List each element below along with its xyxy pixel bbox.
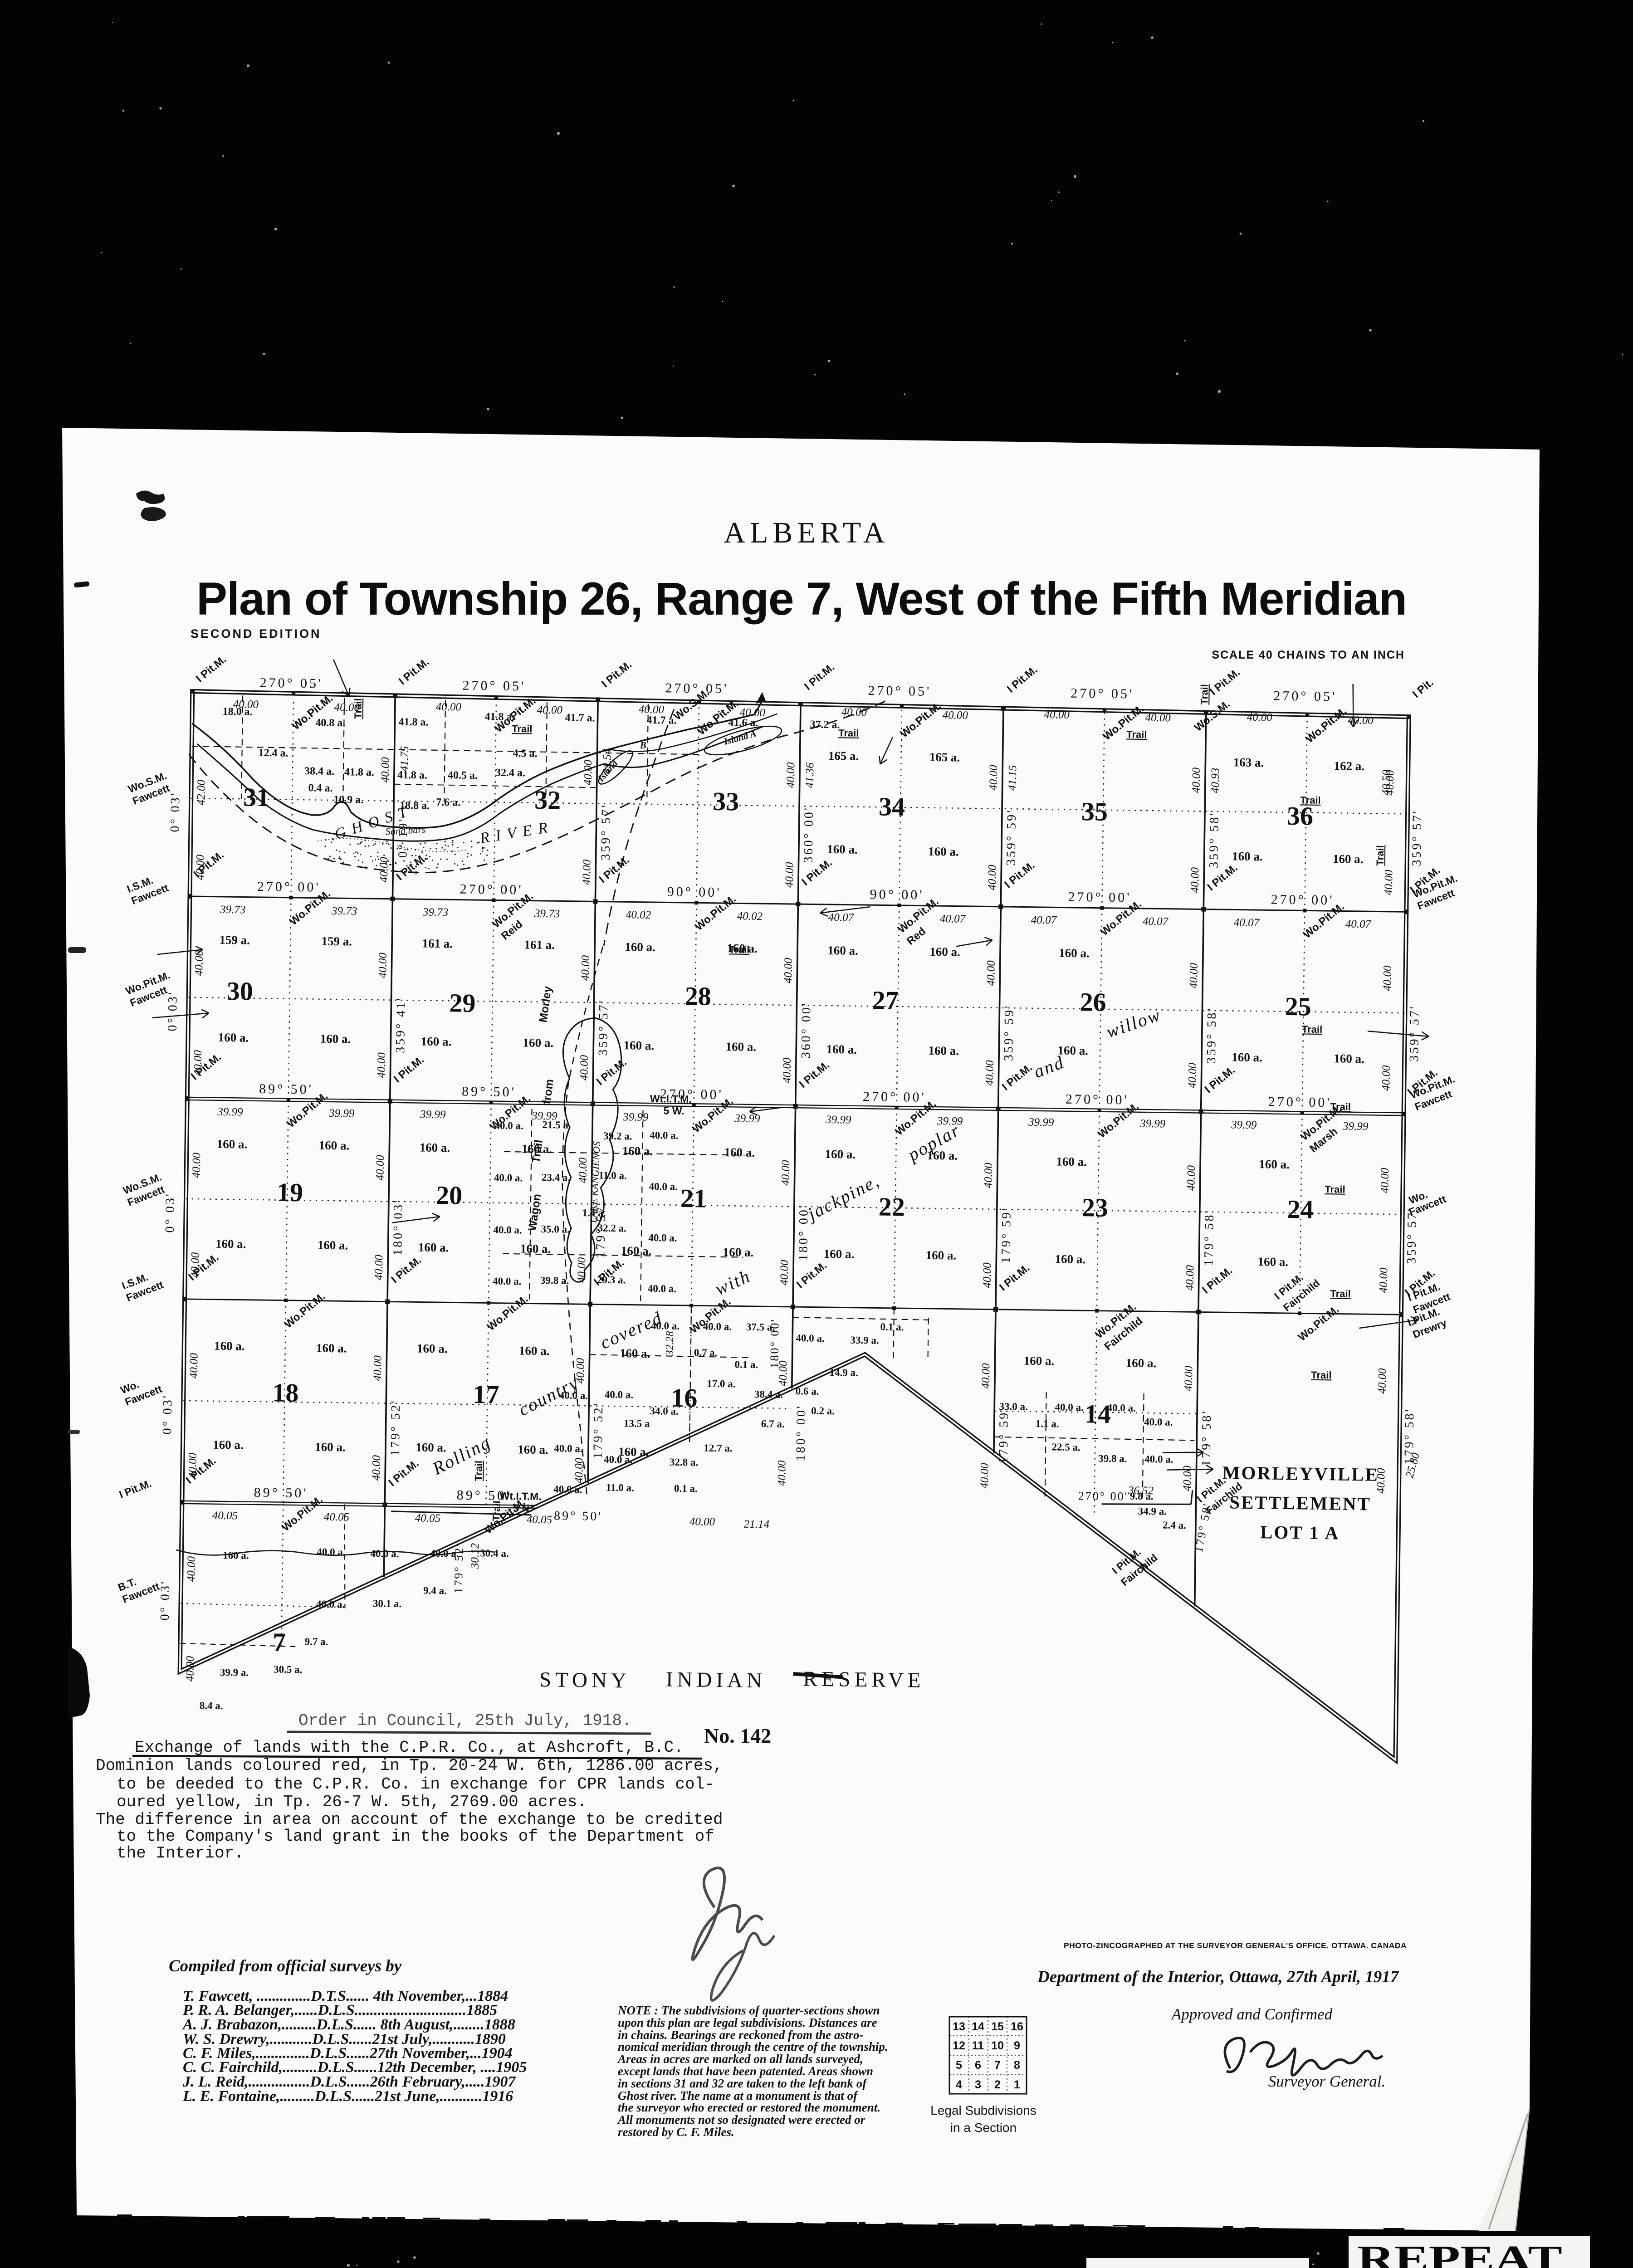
svg-text:B: B <box>640 740 646 751</box>
svg-text:40.00: 40.00 <box>372 1355 384 1381</box>
svg-text:Exchange of lands with the C.P: Exchange of lands with the C.P.R. Co., a… <box>135 1738 684 1757</box>
svg-text:89° 50': 89° 50' <box>462 1084 516 1100</box>
svg-text:35: 35 <box>1081 797 1108 826</box>
svg-text:0.4 a.: 0.4 a. <box>308 782 332 794</box>
svg-text:39.99: 39.99 <box>1342 1120 1369 1133</box>
svg-text:40.00: 40.00 <box>841 706 867 719</box>
svg-text:89° 50': 89° 50' <box>254 1485 308 1501</box>
svg-text:160 a.: 160 a. <box>315 1440 346 1454</box>
svg-text:160 a.: 160 a. <box>223 1549 249 1561</box>
svg-text:40.05: 40.05 <box>527 1514 552 1526</box>
svg-text:32: 32 <box>534 785 561 815</box>
svg-text:38.4 a.: 38.4 a. <box>304 765 334 777</box>
svg-text:40.00: 40.00 <box>1185 1165 1198 1191</box>
svg-text:40.00: 40.00 <box>577 1157 589 1183</box>
svg-text:160 a.: 160 a. <box>214 1339 245 1353</box>
svg-text:39.99: 39.99 <box>1231 1119 1257 1131</box>
svg-text:5 W.: 5 W. <box>663 1105 684 1117</box>
svg-text:160 a.: 160 a. <box>518 1442 548 1457</box>
svg-text:160 a.: 160 a. <box>417 1341 448 1355</box>
svg-text:40.00: 40.00 <box>983 1060 996 1086</box>
svg-text:Trail: Trail <box>473 1461 484 1481</box>
svg-text:0° 03': 0° 03' <box>166 991 180 1031</box>
svg-text:upon this plan are legal subdi: upon this plan are legal subdivisions. D… <box>618 2016 877 2029</box>
svg-text:15: 15 <box>991 2020 1004 2033</box>
svg-text:40.00: 40.00 <box>191 1152 203 1178</box>
svg-text:0° 03': 0° 03' <box>168 792 182 832</box>
svg-text:90° 00': 90° 00' <box>667 884 722 900</box>
svg-text:40.00: 40.00 <box>779 1160 792 1186</box>
svg-text:39.8 a.: 39.8 a. <box>540 1275 569 1286</box>
svg-text:40.02: 40.02 <box>626 909 651 921</box>
svg-text:179° 59': 179° 59' <box>997 1407 1012 1464</box>
svg-text:160 a.: 160 a. <box>1057 1043 1088 1057</box>
svg-text:270° 05': 270° 05' <box>1071 686 1134 702</box>
svg-text:39.73: 39.73 <box>534 908 560 920</box>
svg-text:359° 57': 359° 57' <box>1410 809 1425 866</box>
svg-text:270° 00': 270° 00' <box>1271 892 1334 908</box>
svg-text:40.00: 40.00 <box>1376 1368 1389 1394</box>
svg-text:160 a.: 160 a. <box>725 1040 756 1054</box>
svg-text:40.00: 40.00 <box>1381 965 1394 991</box>
svg-text:Trail: Trail <box>729 943 750 955</box>
svg-text:40.00: 40.00 <box>188 1353 200 1378</box>
svg-text:27: 27 <box>872 985 899 1015</box>
svg-text:40.5 a.: 40.5 a. <box>448 769 478 782</box>
svg-text:40.00: 40.00 <box>185 1556 198 1582</box>
svg-text:40.00: 40.00 <box>194 854 207 880</box>
svg-text:270° 00': 270° 00' <box>1068 890 1131 905</box>
svg-text:except lands that have been pa: except lands that have been patented. Ar… <box>618 2064 873 2078</box>
svg-text:40.00: 40.00 <box>537 704 563 717</box>
svg-text:270° 00': 270° 00' <box>1268 1094 1332 1110</box>
svg-text:11.0 a.: 11.0 a. <box>599 1170 627 1182</box>
svg-text:160 a.: 160 a. <box>929 945 960 959</box>
svg-text:160 a.: 160 a. <box>623 1038 654 1052</box>
svg-text:39.99: 39.99 <box>622 1111 649 1124</box>
svg-text:40.00: 40.00 <box>576 1257 588 1283</box>
svg-text:Trail: Trail <box>1374 845 1386 866</box>
svg-text:40.8 a.: 40.8 a. <box>315 717 345 729</box>
svg-text:32.8 a.: 32.8 a. <box>670 1457 699 1468</box>
svg-text:40.00: 40.00 <box>193 950 205 976</box>
svg-text:9.4 a.: 9.4 a. <box>423 1585 447 1597</box>
svg-text:11: 11 <box>972 2039 984 2052</box>
svg-text:12: 12 <box>953 2039 965 2052</box>
svg-text:39.99: 39.99 <box>420 1108 446 1121</box>
svg-text:179° 58': 179° 58' <box>1199 1409 1214 1466</box>
svg-text:34.9 a.: 34.9 a. <box>1138 1505 1167 1517</box>
svg-text:40.0 a.: 40.0 a. <box>554 1442 583 1454</box>
svg-text:The difference in area on acco: The difference in area on account of the… <box>96 1810 723 1829</box>
svg-text:2 OF / DE 2: 2 OF / DE 2 <box>1101 2265 1294 2268</box>
svg-text:40.00: 40.00 <box>582 759 595 785</box>
svg-text:13.5 a: 13.5 a <box>624 1417 650 1429</box>
svg-text:40.00: 40.00 <box>375 1052 388 1078</box>
svg-text:40.07: 40.07 <box>940 913 966 925</box>
svg-text:9: 9 <box>1014 2039 1020 2052</box>
svg-text:the surveyor who erected or re: the surveyor who erected or restored the… <box>618 2101 880 2114</box>
svg-text:21: 21 <box>680 1183 707 1213</box>
svg-text:40.0 a.: 40.0 a. <box>493 1224 522 1236</box>
svg-text:40.00: 40.00 <box>978 1463 991 1489</box>
svg-text:31: 31 <box>243 782 270 812</box>
svg-text:39.99: 39.99 <box>217 1106 243 1119</box>
svg-text:40.00: 40.00 <box>373 1254 386 1280</box>
svg-text:12.7 a.: 12.7 a. <box>704 1442 733 1454</box>
svg-text:Trail: Trail <box>1126 728 1147 740</box>
svg-text:40.0 a.: 40.0 a. <box>1144 1416 1173 1428</box>
svg-text:34.0 a.: 34.0 a. <box>650 1405 679 1417</box>
svg-text:160 a.: 160 a. <box>213 1438 244 1452</box>
svg-text:32.4 a.: 32.4 a. <box>495 767 525 779</box>
svg-text:1: 1 <box>1014 2078 1020 2091</box>
svg-text:26: 26 <box>1080 987 1106 1017</box>
svg-text:160 a.: 160 a. <box>926 1248 957 1262</box>
svg-text:the Interior.: the Interior. <box>117 1844 244 1862</box>
svg-text:2.4 a.: 2.4 a. <box>1163 1520 1186 1531</box>
svg-text:STONY: STONY <box>539 1668 631 1693</box>
svg-text:40.0 a.: 40.0 a. <box>604 1454 633 1466</box>
svg-text:NOTE : The subdivisions of qu: NOTE : The subdivisions of quarter-secti… <box>617 2004 880 2017</box>
svg-text:0.1 a.: 0.1 a. <box>674 1483 698 1495</box>
svg-text:Compiled from official surveys: Compiled from official surveys by <box>169 1957 402 1975</box>
svg-text:160 a.: 160 a. <box>622 1144 653 1158</box>
svg-text:7: 7 <box>273 1627 286 1657</box>
svg-text:Wt.I.T.M.: Wt.I.T.M. <box>499 1490 541 1502</box>
svg-text:40.00: 40.00 <box>689 1515 715 1528</box>
svg-text:40.0 a.: 40.0 a. <box>317 1546 346 1558</box>
svg-text:39.8 a.: 39.8 a. <box>1098 1453 1127 1465</box>
svg-text:89° 50': 89° 50' <box>554 1509 603 1523</box>
svg-text:30.12: 30.12 <box>469 1543 482 1569</box>
svg-text:162 a.: 162 a. <box>1334 759 1364 773</box>
svg-text:30: 30 <box>226 976 253 1006</box>
svg-text:40.00: 40.00 <box>1378 1267 1390 1293</box>
svg-text:270° 00': 270° 00' <box>1066 1092 1129 1108</box>
svg-text:30.5 a.: 30.5 a. <box>274 1663 303 1675</box>
svg-text:360° 00': 360° 00' <box>799 1002 814 1059</box>
svg-text:40.00: 40.00 <box>1044 709 1070 721</box>
svg-text:40.00: 40.00 <box>578 1055 591 1080</box>
svg-text:163 a.: 163 a. <box>1233 755 1264 769</box>
svg-text:Order in Council, 25th July, 1: Order in Council, 25th July, 1918. <box>298 1711 632 1730</box>
svg-text:Trail: Trail <box>1300 794 1321 806</box>
svg-text:SETTLEMENT: SETTLEMENT <box>1229 1491 1371 1514</box>
svg-text:180° 00': 180° 00' <box>768 1318 781 1369</box>
svg-text:10.9 a.: 10.9 a. <box>333 794 363 806</box>
svg-text:Trail: Trail <box>352 698 364 719</box>
svg-text:0.1 a.: 0.1 a. <box>880 1321 904 1333</box>
svg-text:41.75: 41.75 <box>398 746 411 772</box>
svg-text:40.00: 40.00 <box>783 862 796 888</box>
svg-text:PHOTO-ZINCOGRAPHED AT THE SURV: PHOTO-ZINCOGRAPHED AT THE SURVEYOR GENER… <box>1064 1941 1407 1950</box>
svg-text:32.28: 32.28 <box>664 1331 676 1356</box>
svg-text:30.1 a.: 30.1 a. <box>373 1598 402 1609</box>
svg-text:359° 58': 359° 58' <box>1207 811 1222 868</box>
svg-text:40.00: 40.00 <box>191 1050 204 1075</box>
svg-text:40.00: 40.00 <box>233 698 259 711</box>
svg-text:40.00: 40.00 <box>1186 1062 1199 1088</box>
svg-text:41.7 a.: 41.7 a. <box>646 714 676 727</box>
svg-text:35.0 a.: 35.0 a. <box>541 1223 570 1235</box>
svg-text:39.99: 39.99 <box>1139 1118 1166 1130</box>
svg-text:11.0 a.: 11.0 a. <box>606 1482 634 1494</box>
svg-text:40.07: 40.07 <box>1143 915 1169 928</box>
svg-text:Trail: Trail <box>512 723 533 735</box>
svg-text:160 a.: 160 a. <box>1059 946 1090 960</box>
svg-text:Trail: Trail <box>1198 684 1210 705</box>
svg-text:160 a.: 160 a. <box>625 940 655 954</box>
svg-text:18: 18 <box>272 1378 299 1408</box>
svg-text:39.73: 39.73 <box>220 904 246 916</box>
svg-text:40.00: 40.00 <box>942 709 968 722</box>
svg-text:39.99: 39.99 <box>825 1114 851 1126</box>
svg-text:39.99: 39.99 <box>328 1107 355 1120</box>
svg-text:41.15: 41.15 <box>1007 765 1019 791</box>
svg-text:Plan of Township 26, Range 7,: Plan of Township 26, Range 7, West of th… <box>196 573 1407 625</box>
svg-text:37.2 a.: 37.2 a. <box>810 719 840 731</box>
svg-text:Trail: Trail <box>1302 1023 1323 1035</box>
svg-text:160 a.: 160 a. <box>316 1341 347 1355</box>
svg-text:17: 17 <box>473 1379 499 1409</box>
svg-text:160 a.: 160 a. <box>827 842 858 856</box>
svg-text:165 a.: 165 a. <box>929 750 960 764</box>
svg-text:179° 52': 179° 52' <box>452 1543 465 1593</box>
svg-text:40.00: 40.00 <box>376 953 389 978</box>
svg-text:40.0 a.: 40.0 a. <box>553 1483 582 1495</box>
svg-text:SECOND EDITION: SECOND EDITION <box>191 627 322 640</box>
svg-text:359° 41': 359° 41' <box>393 996 408 1053</box>
svg-text:33: 33 <box>713 787 739 816</box>
svg-text:20: 20 <box>436 1180 463 1210</box>
svg-text:39.2 a.: 39.2 a. <box>603 1130 632 1142</box>
svg-text:9.7 a.: 9.7 a. <box>304 1636 328 1647</box>
svg-text:41.36: 41.36 <box>804 763 816 788</box>
svg-text:160 a.: 160 a. <box>928 1044 959 1058</box>
svg-text:40.00: 40.00 <box>781 1057 793 1083</box>
svg-text:RESERVE: RESERVE <box>803 1667 925 1692</box>
svg-text:21.14: 21.14 <box>744 1518 770 1531</box>
svg-text:40.0 a.: 40.0 a. <box>559 1389 588 1401</box>
svg-text:7.6 a.: 7.6 a. <box>436 797 460 809</box>
svg-text:179° 59': 179° 59' <box>999 1207 1014 1264</box>
svg-text:40.00: 40.00 <box>982 1163 995 1188</box>
svg-text:Trail: Trail <box>1330 1288 1351 1300</box>
svg-text:39.99: 39.99 <box>531 1110 557 1123</box>
svg-text:160 a.: 160 a. <box>1232 1050 1262 1064</box>
svg-text:40.00: 40.00 <box>1379 1168 1391 1193</box>
svg-text:Legal Subdivisions: Legal Subdivisions <box>930 2103 1037 2117</box>
svg-text:to be deeded to the C.P.R. Co.: to be deeded to the C.P.R. Co. in exchan… <box>117 1775 714 1794</box>
svg-text:160 a.: 160 a. <box>416 1440 446 1454</box>
svg-text:161 a.: 161 a. <box>524 938 555 952</box>
svg-text:270° 05': 270° 05' <box>1273 688 1337 704</box>
svg-text:22: 22 <box>878 1192 905 1222</box>
svg-text:0.1 a.: 0.1 a. <box>734 1359 758 1370</box>
svg-text:40.00: 40.00 <box>782 958 795 983</box>
svg-text:90° 00': 90° 00' <box>870 887 924 903</box>
svg-text:40.00: 40.00 <box>378 857 391 883</box>
svg-text:179° 58': 179° 58' <box>1202 1209 1217 1266</box>
svg-text:0° 19': 0° 19' <box>396 817 411 858</box>
svg-text:160 a.: 160 a. <box>927 1149 958 1163</box>
svg-text:40.00: 40.00 <box>1145 712 1171 724</box>
svg-text:160 a.: 160 a. <box>1257 1255 1288 1269</box>
svg-text:160 a.: 160 a. <box>826 1042 857 1056</box>
svg-text:40.00: 40.00 <box>374 1154 387 1180</box>
svg-text:160 a.: 160 a. <box>523 1036 553 1050</box>
svg-text:18.8 a.: 18.8 a. <box>400 800 430 812</box>
svg-text:270° 05': 270° 05' <box>868 683 931 699</box>
svg-text:Trail: Trail <box>838 727 859 739</box>
svg-text:0° 03': 0° 03' <box>163 1192 177 1233</box>
svg-text:ALBERTA: ALBERTA <box>724 516 889 549</box>
svg-text:40.00: 40.00 <box>184 1656 196 1681</box>
svg-text:160 a.: 160 a. <box>1126 1356 1157 1370</box>
svg-text:12.4 a.: 12.4 a. <box>258 747 288 759</box>
svg-text:359° 57': 359° 57' <box>1407 1005 1422 1062</box>
svg-text:160 a.: 160 a. <box>1259 1157 1290 1171</box>
svg-text:LOT 1 A: LOT 1 A <box>1260 1521 1340 1543</box>
svg-text:restored by C. F. Miles.: restored by C. F. Miles. <box>618 2125 734 2139</box>
svg-text:39.73: 39.73 <box>422 906 449 919</box>
svg-text:40.00: 40.00 <box>186 1452 199 1478</box>
svg-text:34: 34 <box>879 792 905 821</box>
svg-text:40.00: 40.00 <box>1189 867 1202 893</box>
svg-text:40.93: 40.93 <box>1209 767 1222 793</box>
svg-text:160 a.: 160 a. <box>215 1237 246 1251</box>
svg-text:180° 03': 180° 03' <box>391 1198 406 1256</box>
svg-text:270° 00': 270° 00' <box>1078 1489 1129 1503</box>
svg-text:160 a.: 160 a. <box>519 1344 550 1358</box>
svg-text:39.9 a.: 39.9 a. <box>220 1667 249 1678</box>
svg-text:Approved and Confirmed: Approved and Confirmed <box>1171 2005 1333 2023</box>
svg-text:359° 58': 359° 58' <box>1204 1007 1219 1064</box>
svg-text:41.54: 41.54 <box>601 748 614 774</box>
svg-text:40.00: 40.00 <box>639 704 665 716</box>
svg-text:40.07: 40.07 <box>828 911 855 924</box>
svg-text:270° 00': 270° 00' <box>460 882 523 898</box>
svg-text:40.00: 40.00 <box>986 865 999 890</box>
svg-text:No. 142: No. 142 <box>704 1724 771 1747</box>
svg-text:161 a.: 161 a. <box>422 937 453 951</box>
svg-text:41.7 a.: 41.7 a. <box>565 712 595 724</box>
svg-text:160 a.: 160 a. <box>320 1032 351 1046</box>
svg-text:Trail: Trail <box>1325 1183 1345 1195</box>
svg-text:160 a.: 160 a. <box>1056 1154 1087 1168</box>
svg-text:0.6 a.: 0.6 a. <box>796 1385 819 1397</box>
svg-text:28: 28 <box>684 981 711 1011</box>
svg-text:179° 52': 179° 52' <box>388 1399 403 1456</box>
svg-text:40.00: 40.00 <box>785 762 797 788</box>
svg-text:40.00: 40.00 <box>985 960 997 986</box>
svg-text:Department of the Interior, Ot: Department of the Interior, Ottawa, 27th… <box>1037 1968 1399 1986</box>
svg-text:40.00: 40.00 <box>579 955 592 981</box>
svg-text:in a Section: in a Section <box>950 2121 1017 2135</box>
svg-text:270° 00': 270° 00' <box>257 879 321 895</box>
svg-text:40.02: 40.02 <box>737 910 763 923</box>
svg-text:29: 29 <box>449 988 476 1018</box>
svg-text:40.05: 40.05 <box>212 1510 238 1522</box>
svg-text:40.0 a.: 40.0 a. <box>605 1389 634 1401</box>
svg-text:160 a.: 160 a. <box>520 1242 551 1256</box>
svg-text:22.5 a.: 22.5 a. <box>1051 1441 1081 1453</box>
svg-text:40.50: 40.50 <box>1380 770 1393 796</box>
svg-text:MORLEYVILLE: MORLEYVILLE <box>1222 1462 1379 1485</box>
svg-text:8: 8 <box>1014 2059 1020 2072</box>
svg-text:89° 50': 89° 50' <box>259 1081 313 1097</box>
svg-text:160 a.: 160 a. <box>620 1346 650 1360</box>
svg-text:40.00: 40.00 <box>1184 1265 1197 1290</box>
svg-text:165 a.: 165 a. <box>828 749 859 763</box>
svg-text:40.07: 40.07 <box>1345 918 1372 931</box>
svg-text:160 a.: 160 a. <box>217 1137 248 1151</box>
svg-text:L. E. Fontaine,.........D.L.S.: L. E. Fontaine,.........D.L.S......21st … <box>182 2088 513 2105</box>
svg-text:41.8 a.: 41.8 a. <box>344 766 374 778</box>
svg-text:160 a.: 160 a. <box>420 1035 451 1049</box>
svg-text:to the Company's land grant in: to the Company's land grant in the books… <box>117 1827 714 1846</box>
svg-text:Areas in acres are marked on a: Areas in acres are marked on all lands s… <box>617 2052 863 2066</box>
svg-text:180° 00': 180° 00' <box>794 1404 809 1461</box>
svg-text:25: 25 <box>1285 992 1311 1022</box>
svg-text:40.00: 40.00 <box>1190 767 1203 793</box>
svg-text:160 a.: 160 a. <box>218 1031 249 1045</box>
svg-text:270° 05': 270° 05' <box>462 678 526 694</box>
svg-text:REPEAT: REPEAT <box>1357 2238 1562 2268</box>
svg-text:40.00: 40.00 <box>573 1457 586 1483</box>
svg-text:160 a.: 160 a. <box>723 1245 754 1259</box>
svg-text:160 a.: 160 a. <box>1024 1354 1055 1368</box>
svg-text:160 a.: 160 a. <box>827 943 858 958</box>
svg-text:6.7 a.: 6.7 a. <box>761 1418 785 1430</box>
svg-text:33.9 a.: 33.9 a. <box>850 1334 879 1346</box>
svg-text:160 a.: 160 a. <box>318 1238 348 1252</box>
svg-text:Dominion lands coloured red, i: Dominion lands coloured red, in Tp. 20-2… <box>96 1756 723 1775</box>
svg-text:160 a.: 160 a. <box>724 1145 755 1159</box>
svg-text:2: 2 <box>994 2078 1001 2091</box>
svg-text:160 a.: 160 a. <box>1055 1252 1085 1266</box>
svg-text:38.4 a.: 38.4 a. <box>754 1388 783 1400</box>
svg-text:All monuments not so designate: All monuments not so designated were ere… <box>617 2113 865 2126</box>
svg-text:Wt.I.T.M.: Wt.I.T.M. <box>650 1093 692 1105</box>
svg-text:160 a.: 160 a. <box>825 1147 856 1161</box>
svg-text:160 a.: 160 a. <box>1334 1051 1364 1066</box>
svg-text:23: 23 <box>1081 1193 1108 1222</box>
svg-text:160 a.: 160 a. <box>621 1244 652 1258</box>
svg-text:40.0 a.: 40.0 a. <box>493 1276 522 1287</box>
svg-text:360° 00': 360° 00' <box>802 806 816 863</box>
svg-text:359° 59': 359° 59' <box>1002 1004 1017 1061</box>
svg-text:40.0 a.: 40.0 a. <box>1055 1401 1084 1413</box>
svg-text:40.00: 40.00 <box>1183 1365 1195 1391</box>
svg-text:179° 57': 179° 57' <box>593 1201 608 1258</box>
svg-text:159 a.: 159 a. <box>219 933 250 947</box>
svg-text:6: 6 <box>975 2059 981 2072</box>
svg-text:19: 19 <box>277 1177 303 1207</box>
svg-text:40.07: 40.07 <box>1031 914 1057 927</box>
svg-text:7: 7 <box>994 2059 1001 2072</box>
svg-text:1.1 a.: 1.1 a. <box>1036 1418 1059 1430</box>
svg-text:40.0 a.: 40.0 a. <box>651 1320 680 1332</box>
svg-text:41.8 a.: 41.8 a. <box>398 716 428 728</box>
svg-text:160 a.: 160 a. <box>420 1140 450 1154</box>
svg-text:in sections 31 and 32 are take: in sections 31 and 32 are taken to the l… <box>618 2077 868 2090</box>
svg-text:159 a.: 159 a. <box>321 934 352 948</box>
svg-text:40.00: 40.00 <box>988 765 1000 791</box>
svg-text:INDIAN: INDIAN <box>666 1668 767 1693</box>
svg-text:Trail: Trail <box>1311 1369 1332 1381</box>
